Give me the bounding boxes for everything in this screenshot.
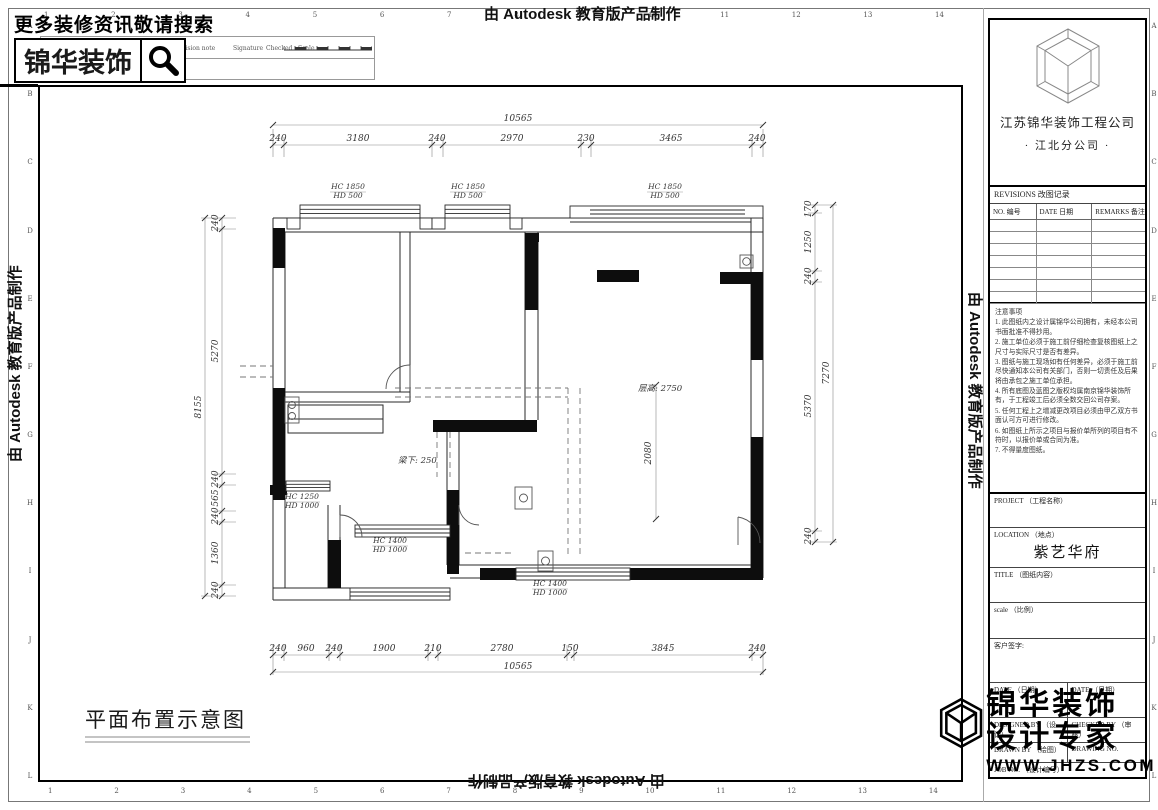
ruler-number: 7 (447, 11, 451, 19)
rev-empty-row (990, 244, 1145, 256)
ruler-letter: H (1151, 499, 1157, 507)
search-hint-text: 更多装修资讯敬请搜索 (14, 10, 214, 37)
svg-text:240: 240 (324, 644, 342, 654)
svg-text:240: 240 (211, 581, 221, 599)
notes-section: 注意事项 1. 此图纸内之设计属锦华公司拥有，未经本公司书面批准不得抄用。 2.… (990, 304, 1145, 494)
ruler-number: 5 (313, 11, 317, 19)
ruler-letter: I (1153, 567, 1156, 575)
svg-text:HC 1250: HC 1250 (284, 492, 319, 501)
svg-text:HD 500: HD 500 (649, 191, 679, 200)
location-value: 紫艺华府 (994, 541, 1141, 562)
cube-logo-icon (938, 688, 984, 758)
autodesk-stamp-left: 由 Autodesk 教育版产品制作 (4, 252, 25, 462)
svg-text:10565: 10565 (504, 662, 533, 672)
rev-empty-row (990, 232, 1145, 244)
ruler-letter: A (1151, 22, 1156, 30)
ceiling-height-label: 层高: 2750 (638, 383, 683, 394)
ruler-letter: J (29, 636, 32, 644)
svg-text:HC 1850: HC 1850 (450, 182, 485, 191)
ruler-number: 4 (247, 787, 251, 795)
svg-text:8155: 8155 (194, 395, 204, 418)
ruler-letter: B (27, 90, 32, 98)
title-block: 江苏锦华装饰工程公司 · 江北分公司 · REVISIONS 改图记录 NO. … (988, 18, 1147, 779)
svg-text:3180: 3180 (347, 134, 370, 144)
ruler-letter: F (1152, 363, 1157, 371)
rev-empty-row (990, 280, 1145, 292)
svg-text:HD 1000: HD 1000 (284, 501, 319, 510)
svg-text:240: 240 (211, 470, 221, 488)
svg-text:1900: 1900 (373, 644, 396, 654)
watermark-slogan: 设计专家 (986, 721, 1156, 754)
project-field: PROJECT （工程名称） (990, 494, 1145, 528)
wall-lines (273, 218, 763, 600)
brand-name: 锦华装饰 (16, 40, 142, 81)
watermark-text: 锦华装饰 设计专家 WWW.JHZS.COM (986, 688, 1156, 776)
company-logo-section: 江苏锦华装饰工程公司 · 江北分公司 · (990, 20, 1145, 187)
ruler-letter: D (27, 227, 33, 235)
svg-text:HC 1850: HC 1850 (647, 182, 682, 191)
svg-text:3465: 3465 (660, 134, 683, 144)
note-item: 4. 所有底图及蓝图之版权均属南京锦华装饰所有，于工程竣工后必须全数交回公司存案… (995, 387, 1140, 406)
svg-text:1360: 1360 (211, 541, 221, 564)
svg-text:3845: 3845 (652, 644, 675, 654)
svg-text:565: 565 (211, 489, 221, 506)
svg-text:HC 1400: HC 1400 (372, 536, 407, 545)
notes-title: 注意事项 (995, 308, 1140, 317)
ruler-number: 13 (863, 11, 872, 19)
ruler-number: 3 (181, 787, 185, 795)
ruler-letter: C (27, 158, 32, 166)
rev-empty-row (990, 292, 1145, 304)
svg-text:HD 1000: HD 1000 (372, 545, 407, 554)
watermark-site: WWW.JHZS.COM (986, 756, 1156, 776)
frame-extension-line (0, 84, 38, 87)
magnifier-icon (142, 40, 184, 81)
drawing-sheet: 1234567891011121314 1234567891011121314 … (0, 0, 1158, 810)
ruler-left: ABCDEFGHIJKL (25, 22, 35, 780)
ruler-letter: F (28, 363, 33, 371)
svg-text:HC 1850: HC 1850 (330, 182, 365, 191)
company-name: 江苏锦华装饰工程公司 (994, 112, 1141, 131)
rev-empty-row (990, 220, 1145, 232)
svg-text:230: 230 (576, 134, 594, 144)
svg-text:240: 240 (211, 507, 221, 525)
wall-piers (270, 228, 763, 588)
ruler-number: 11 (720, 11, 729, 19)
rev-empty-row (990, 256, 1145, 268)
revstrip-signature-label: Signature (233, 45, 263, 52)
note-item: 3. 图纸与施工现场如有任何差异，必须于施工前尽快通知本公司有关部门，否则一切责… (995, 358, 1140, 386)
autodesk-stamp-right: 由 Autodesk 教育版产品制作 (965, 292, 986, 502)
svg-text:240: 240 (747, 644, 765, 654)
client-signature-field: 客户签字: (990, 639, 1145, 683)
location-field: LOCATION （地点） 紫艺华府 (990, 528, 1145, 568)
ruler-number: 11 (716, 787, 725, 795)
ruler-letter: G (1151, 431, 1157, 439)
svg-text:2780: 2780 (490, 644, 514, 654)
revisions-table: NO. 编号 DATE 日期 REMARKS 备注 (990, 204, 1145, 304)
ruler-letter: E (27, 295, 32, 303)
note-item: 5. 任何工程上之增减更改项目必须由甲乙双方书面认可方可进行修改。 (995, 407, 1140, 426)
svg-text:2080: 2080 (644, 441, 654, 465)
revisions-table-header: NO. 编号 DATE 日期 REMARKS 备注 (990, 204, 1145, 220)
svg-text:240: 240 (747, 134, 765, 144)
svg-text:平面布置示意图: 平面布置示意图 (85, 708, 246, 732)
ruler-letter: K (27, 704, 32, 712)
note-item: 2. 施工单位必须于施工前仔细检查复核图纸上之尺寸与实际尺寸是否有差异。 (995, 338, 1140, 357)
svg-text:HD 1000: HD 1000 (532, 588, 567, 597)
ruler-letter: C (1151, 158, 1156, 166)
ruler-number: 14 (929, 787, 938, 795)
svg-text:HD 500: HD 500 (452, 191, 482, 200)
note-item: 7. 不得量度图纸。 (995, 446, 1140, 455)
dimension-ticks (202, 122, 836, 675)
rev-empty-row (990, 268, 1145, 280)
note-item: 1. 此图纸内之设计属锦华公司拥有，未经本公司书面批准不得抄用。 (995, 318, 1140, 337)
svg-text:7270: 7270 (822, 361, 832, 384)
company-branch: · 江北分公司 · (994, 137, 1141, 153)
svg-text:1250: 1250 (804, 230, 814, 253)
rev-col-date: DATE 日期 (1037, 204, 1093, 219)
ruler-number: 1 (48, 787, 52, 795)
ruler-number: 14 (935, 11, 944, 19)
ruler-number: 5 (314, 787, 318, 795)
watermark-brand: 锦华装饰 (986, 688, 1156, 721)
svg-text:240: 240 (427, 134, 445, 144)
svg-text:150: 150 (561, 644, 578, 654)
ruler-number: 6 (380, 11, 384, 19)
note-item: 6. 如图纸上所示之项目与报价单所列的项目有不符时，以报价单或合同为准。 (995, 427, 1140, 446)
ruler-number: 7 (446, 787, 450, 795)
svg-text:240: 240 (211, 214, 221, 232)
rev-col-remarks: REMARKS 备注 (1092, 204, 1145, 219)
scale-bar (284, 43, 372, 53)
brand-watermark: 锦华装饰 设计专家 WWW.JHZS.COM (938, 688, 1156, 784)
ruler-number: 13 (858, 787, 867, 795)
rev-col-no: NO. 编号 (990, 204, 1037, 219)
svg-text:960: 960 (297, 644, 314, 654)
ruler-number: 12 (787, 787, 796, 795)
svg-text:HD 500: HD 500 (332, 191, 362, 200)
svg-text:240: 240 (268, 644, 286, 654)
cube-logo-icon (1032, 26, 1104, 106)
revisions-title: REVISIONS 改图记录 (990, 187, 1145, 204)
beam-height-label: 梁下: 250 (398, 455, 437, 466)
ruler-letter: G (27, 431, 33, 439)
ruler-number: 6 (380, 787, 384, 795)
floor-plan-drawing: 10565 240 3180 240 2970 230 3465 240 105… (38, 85, 963, 782)
plan-labels: HC 1850 HD 500 HC 1850 HD 500 HC 1850 HD… (284, 182, 683, 597)
ruler-letter: H (27, 499, 33, 507)
ruler-number: 4 (246, 11, 250, 19)
svg-text:240: 240 (268, 134, 286, 144)
title-field: TITLE （图纸内容） (990, 568, 1145, 603)
ruler-letter: D (1151, 227, 1157, 235)
svg-text:5370: 5370 (804, 394, 814, 417)
autodesk-stamp-top: 由 Autodesk 教育版产品制作 (484, 3, 681, 24)
location-label: LOCATION （地点） (994, 530, 1141, 540)
plan-caption: 平面布置示意图 (85, 708, 250, 742)
ruler-letter: L (28, 772, 33, 780)
ruler-right: ABCDEFGHIJKL (1150, 22, 1158, 780)
svg-text:2970: 2970 (500, 134, 524, 144)
svg-text:5270: 5270 (211, 339, 221, 362)
svg-text:170: 170 (804, 200, 814, 217)
ruler-number: 2 (114, 787, 118, 795)
brand-logo-box: 锦华装饰 (14, 38, 186, 83)
ruler-letter: B (1151, 90, 1156, 98)
doors-and-fixtures (285, 255, 760, 571)
svg-text:240: 240 (804, 267, 814, 285)
ruler-letter: J (1153, 636, 1156, 644)
svg-text:210: 210 (423, 644, 441, 654)
svg-text:HC 1400: HC 1400 (532, 579, 567, 588)
scale-field: scale （比例） (990, 603, 1145, 639)
ruler-letter: E (1151, 295, 1156, 303)
ruler-number: 12 (792, 11, 801, 19)
svg-text:10565: 10565 (504, 114, 533, 124)
ruler-letter: I (29, 567, 32, 575)
svg-text:240: 240 (804, 527, 814, 545)
